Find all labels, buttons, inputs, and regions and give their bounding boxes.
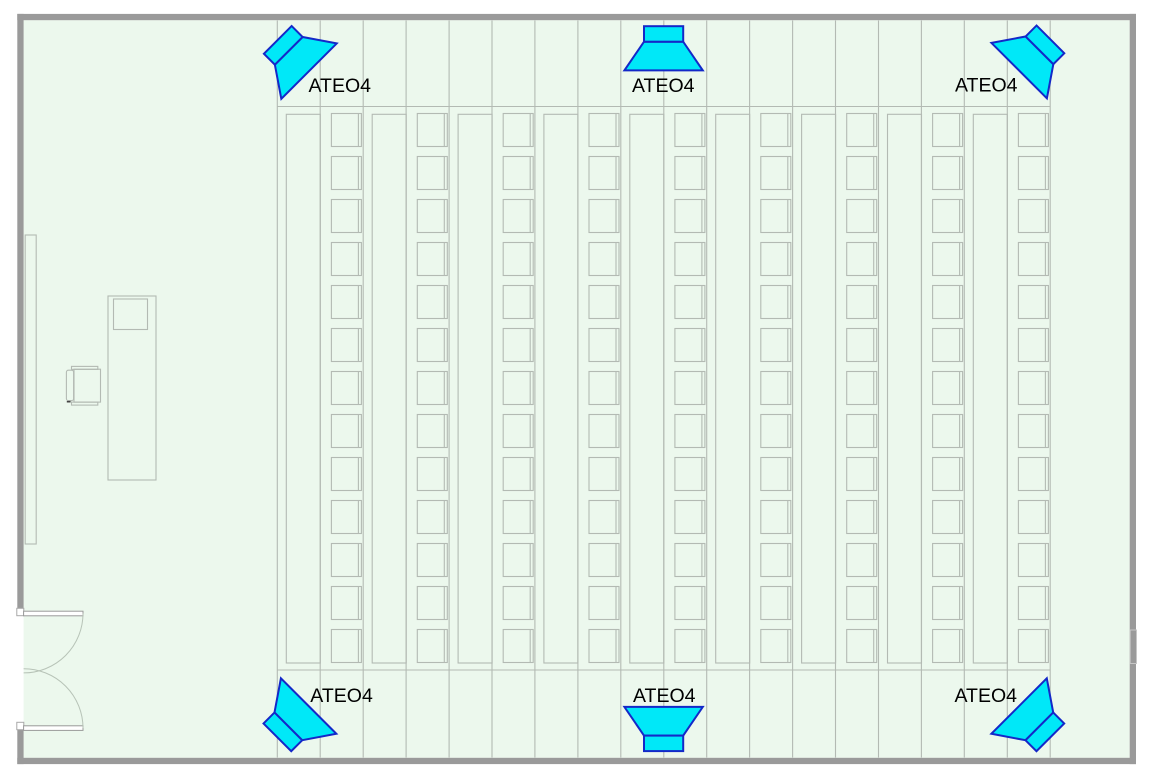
svg-text:ATEO4: ATEO4 — [955, 685, 1018, 707]
svg-text:ATEO4: ATEO4 — [309, 75, 372, 97]
svg-text:ATEO4: ATEO4 — [632, 75, 695, 97]
svg-text:ATEO4: ATEO4 — [310, 685, 373, 707]
svg-text:ATEO4: ATEO4 — [955, 75, 1018, 97]
svg-text:ATEO4: ATEO4 — [633, 685, 696, 707]
